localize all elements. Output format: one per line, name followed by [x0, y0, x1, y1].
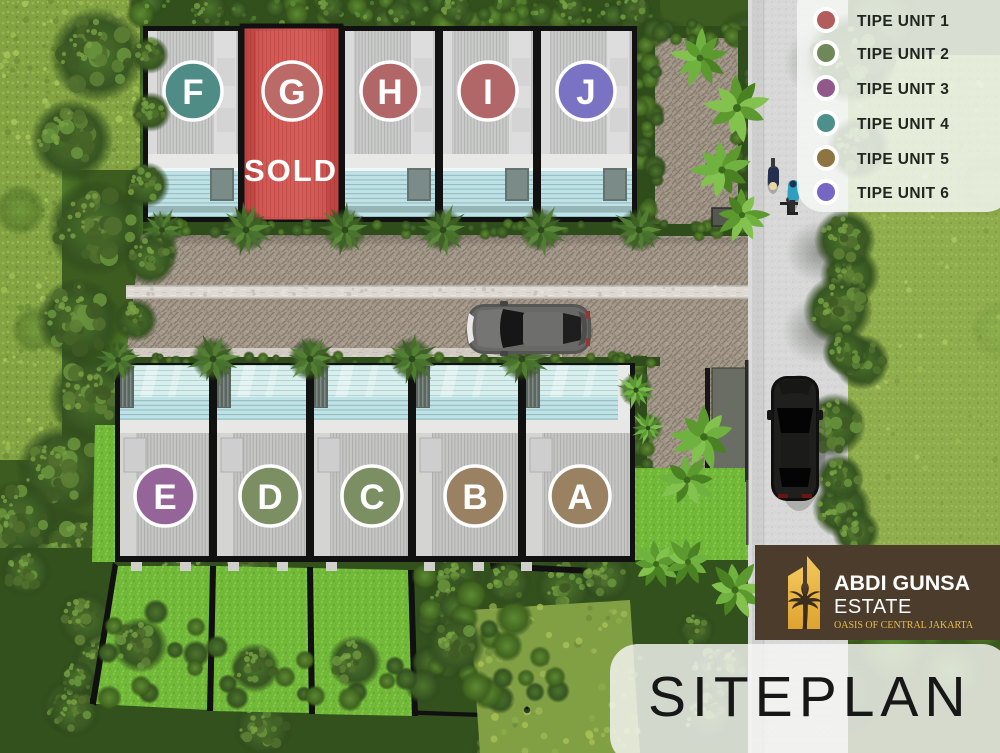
svg-text:SOLD: SOLD: [244, 153, 338, 188]
svg-text:F: F: [182, 73, 203, 112]
svg-text:B: B: [462, 478, 487, 517]
svg-text:TIPE UNIT 4: TIPE UNIT 4: [857, 116, 949, 133]
svg-text:C: C: [359, 478, 384, 517]
svg-text:G: G: [278, 73, 305, 112]
svg-text:I: I: [483, 73, 493, 112]
svg-text:D: D: [257, 478, 282, 517]
svg-text:A: A: [567, 478, 592, 517]
svg-text:TIPE UNIT 5: TIPE UNIT 5: [857, 151, 949, 168]
svg-text:OASIS OF CENTRAL JAKARTA: OASIS OF CENTRAL JAKARTA: [834, 620, 974, 631]
svg-text:ESTATE: ESTATE: [834, 596, 912, 618]
svg-text:TIPE UNIT 3: TIPE UNIT 3: [857, 81, 949, 98]
svg-text:TIPE UNIT 6: TIPE UNIT 6: [857, 185, 949, 202]
svg-text:TIPE UNIT 1: TIPE UNIT 1: [857, 13, 949, 30]
svg-text:ABDI GUNSA: ABDI GUNSA: [834, 571, 970, 595]
svg-text:SITEPLAN: SITEPLAN: [648, 665, 972, 729]
svg-text:H: H: [377, 73, 402, 112]
svg-text:J: J: [576, 73, 595, 112]
svg-text:TIPE UNIT 2: TIPE UNIT 2: [857, 46, 949, 63]
svg-text:E: E: [153, 478, 176, 517]
